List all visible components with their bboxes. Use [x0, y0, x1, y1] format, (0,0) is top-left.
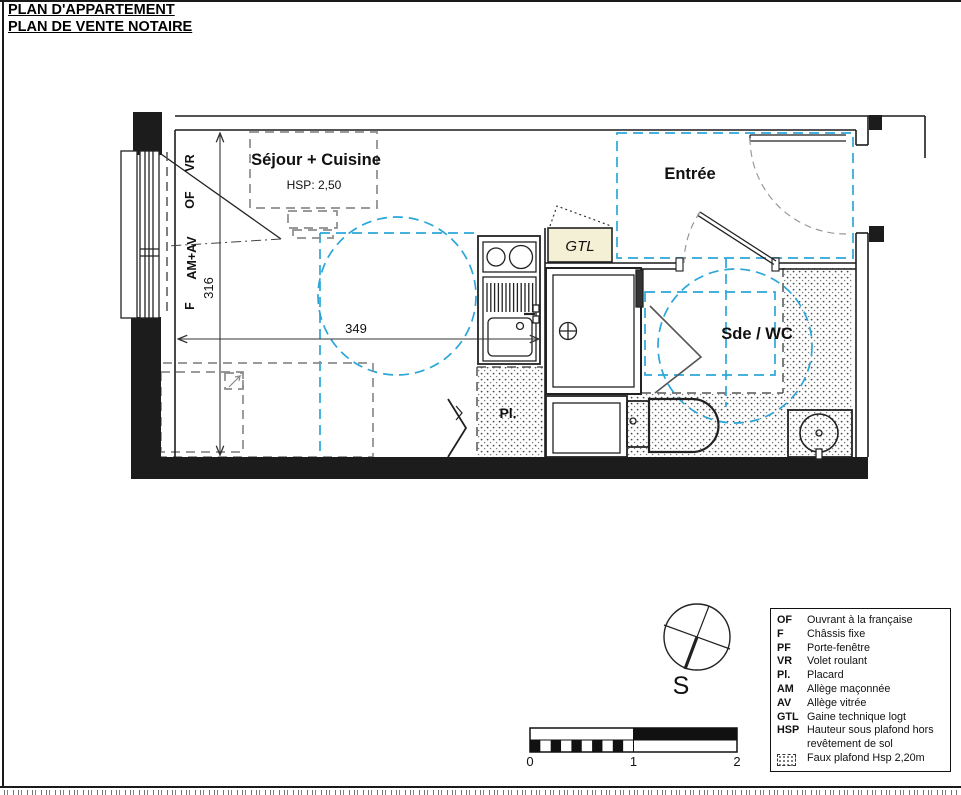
legend-row: GTL Gaine technique logt — [777, 711, 944, 725]
scale-tick-0: 0 — [526, 754, 533, 769]
entrance-door — [750, 135, 846, 234]
window-label-f: F — [183, 302, 197, 310]
legend-row: OF Ouvrant à la française — [777, 614, 944, 628]
window-label-vr: VR — [183, 154, 197, 171]
dimension-height: 316 — [201, 133, 220, 455]
dim-349-label: 349 — [345, 321, 367, 336]
interior-door — [684, 212, 776, 264]
appliance-space — [546, 396, 627, 457]
furniture-dashed-outlines — [148, 132, 377, 457]
legend-row: AM Allège maçonnée — [777, 683, 944, 697]
gtl-label: GTL — [565, 238, 594, 255]
kitchen-unit — [478, 236, 540, 364]
scale-tick-2: 2 — [733, 754, 740, 769]
legend-row: F Châssis fixe — [777, 628, 944, 642]
page-bottom-rule — [0, 786, 961, 788]
washbasin — [788, 410, 852, 459]
compass-icon: S — [664, 604, 730, 700]
legend-row: VR Volet roulant — [777, 655, 944, 669]
page: PLAN D'APPARTEMENT PLAN DE VENTE NOTAIRE — [0, 0, 961, 795]
legend-box: OF Ouvrant à la française F Châssis fixe… — [770, 608, 951, 772]
legend-row: AV Allège vitrée — [777, 697, 944, 711]
window-label-of: OF — [183, 191, 197, 209]
shower-door-swing — [650, 306, 701, 393]
room-label-sde-wc: Sde / WC — [721, 325, 793, 343]
legend-row: PF Porte-fenêtre — [777, 642, 944, 656]
shower-door-pivot — [636, 270, 643, 307]
placard-door — [448, 399, 466, 457]
hsp-label: HSP: 2,50 — [287, 178, 342, 192]
compass-south-label: S — [673, 672, 690, 700]
window-labels: VR OF AM+AV F — [183, 154, 199, 310]
legend-row: Faux plafond Hsp 2,20m — [777, 752, 944, 766]
room-label-sejour: Séjour + Cuisine — [251, 151, 381, 169]
dim-316-label: 316 — [201, 277, 216, 299]
window-label-am-av: AM+AV — [185, 236, 199, 280]
room-label-placard: Pl. — [499, 405, 516, 421]
scale-tick-1: 1 — [630, 754, 637, 769]
legend-row: HSP Hauteur sous plafond hors revêtement… — [777, 724, 944, 752]
cropped-footer-text — [4, 790, 957, 795]
room-label-entree: Entrée — [664, 165, 715, 183]
legend-row: Pl. Placard — [777, 669, 944, 683]
scale-bar: 0 1 2 — [526, 728, 740, 769]
shower — [546, 268, 643, 394]
faux-plafond-swatch — [777, 754, 796, 766]
